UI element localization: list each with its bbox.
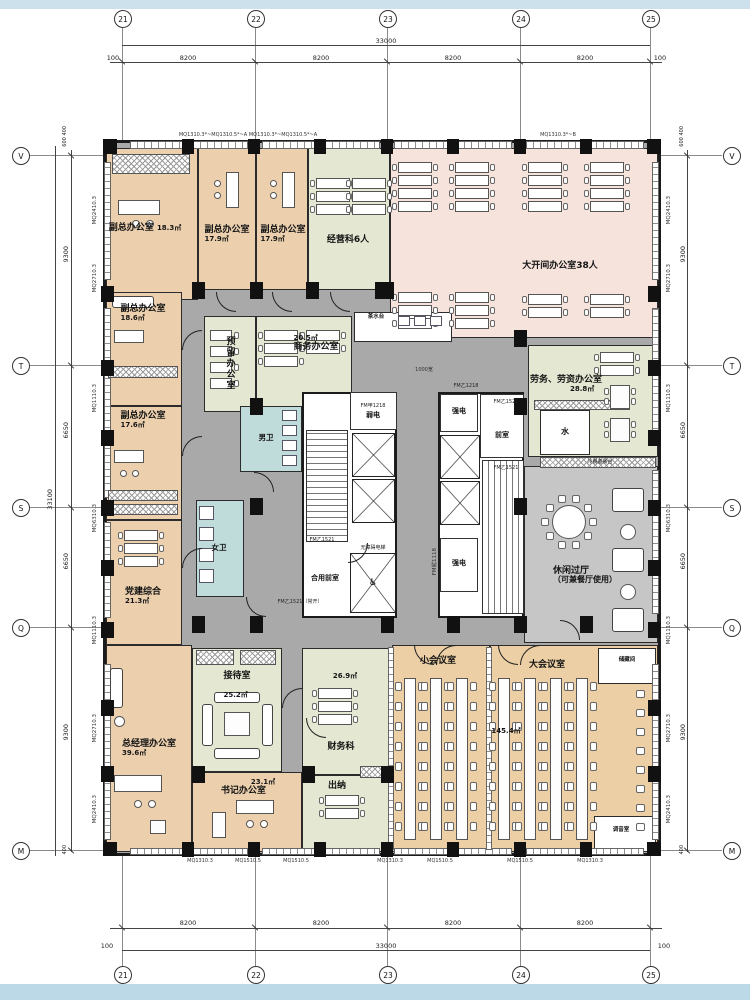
furniture-chair <box>449 164 454 171</box>
furniture-chair <box>490 307 495 314</box>
furniture-desk <box>455 305 489 316</box>
furniture-chair <box>353 716 358 723</box>
tag-fm-jia-1218: FM甲1218 <box>361 404 386 409</box>
wall-tag-bottom: MQ1310.3 <box>577 858 603 864</box>
tag-fm-bing-1118: FM丙1118 <box>431 548 439 575</box>
wall-tag-right: MQ2710.3 <box>666 714 672 742</box>
furniture-chair <box>159 558 164 565</box>
furniture-desk <box>318 688 352 699</box>
furniture-desk <box>528 294 562 305</box>
furniture-chair <box>625 190 630 197</box>
room-deputy-2 <box>198 148 256 290</box>
furniture-desk <box>282 172 295 208</box>
column <box>250 282 263 299</box>
furniture-chair <box>631 398 636 405</box>
wall-tag-bottom: MQ1510.5 <box>507 858 533 864</box>
dim-seg-right: 6650 <box>679 553 687 570</box>
furniture-chair <box>395 822 402 831</box>
grid-bubble-right-V: V <box>723 147 741 165</box>
furniture-chair <box>387 180 392 187</box>
furniture-desk <box>352 204 386 215</box>
furniture-desk <box>455 188 489 199</box>
furniture-chair <box>395 802 402 811</box>
furniture-circ <box>120 470 127 477</box>
furniture-desk <box>114 450 144 463</box>
furniture-desk <box>325 808 359 819</box>
wall-tag-right: MQ2410.3 <box>666 196 672 224</box>
column <box>101 766 114 782</box>
furniture-desk <box>455 201 489 212</box>
wall-tag-left: MQ1110.3 <box>92 616 98 644</box>
furniture-fix <box>199 506 214 520</box>
grid-bubble-top-21: 21 <box>114 10 132 28</box>
furniture-chair <box>584 177 589 184</box>
column <box>381 139 393 154</box>
label-mens-toilet: 男卫 <box>259 434 274 442</box>
furniture-chair <box>258 345 263 352</box>
furniture-circ <box>552 505 586 539</box>
tag-fm-1521-b: FM乙1521 <box>494 466 519 471</box>
furniture-tbl <box>610 418 630 442</box>
dim-edge: 100 <box>654 54 666 62</box>
furniture-chair <box>625 164 630 171</box>
furniture-chair <box>353 690 358 697</box>
furniture-sofa <box>612 608 644 632</box>
dim-line <box>71 150 72 852</box>
label-cashier: 出纳 <box>328 782 346 791</box>
furniture-chair <box>490 177 495 184</box>
furniture-chair <box>341 332 346 339</box>
column <box>648 286 661 302</box>
stair-right <box>482 460 524 614</box>
furniture-desk <box>590 201 624 212</box>
wall-tag-right: MQ2710.3 <box>666 264 672 292</box>
furniture-desk <box>316 178 350 189</box>
furniture-chair <box>546 504 554 512</box>
furniture-chair <box>234 364 239 371</box>
furniture-desk <box>124 543 158 554</box>
furniture-chair <box>567 682 574 691</box>
dim-seg-left: 6650 <box>62 422 70 439</box>
furniture-chair <box>563 164 568 171</box>
column <box>101 560 114 576</box>
furniture-desk <box>398 175 432 186</box>
furniture-chair <box>447 802 454 811</box>
dim-seg-bottom: 8200 <box>180 919 197 927</box>
grid-bubble-bottom-21: 21 <box>114 966 132 984</box>
label-accessible-elevator: 无障碍电梯 <box>360 546 385 551</box>
column <box>580 616 593 633</box>
grid-bubble-bottom-23: 23 <box>379 966 397 984</box>
furniture-chair <box>470 682 477 691</box>
furniture-chair <box>584 203 589 210</box>
furniture-chair <box>636 728 645 736</box>
column <box>314 842 326 857</box>
grid-line-col <box>650 28 651 140</box>
furniture-chair <box>541 782 548 791</box>
furniture-tbl <box>150 820 166 834</box>
furniture-chair <box>234 348 239 355</box>
furniture-chair <box>118 558 123 565</box>
furniture-chair <box>541 702 548 711</box>
furniture-chair <box>392 203 397 210</box>
column <box>375 282 388 299</box>
furniture-chair <box>567 762 574 771</box>
column <box>101 500 114 516</box>
furniture-circ <box>246 820 254 828</box>
dim-total-bottom: 33000 <box>376 942 397 950</box>
tag-fm-1521-a: FM乙1521 <box>494 400 519 405</box>
furniture-chair <box>490 164 495 171</box>
dim-total-top: 33000 <box>376 37 397 45</box>
column <box>192 282 205 299</box>
dim-seg-bottom: 8200 <box>313 919 330 927</box>
furniture-fix <box>430 316 442 326</box>
label-large-meeting-area: 145.4㎡ <box>491 728 520 735</box>
furniture-tbl <box>550 678 562 840</box>
furniture-chair <box>590 802 597 811</box>
furniture-chair <box>421 722 428 731</box>
column <box>182 139 194 154</box>
furniture-fix <box>199 569 214 583</box>
dim-seg-bottom: 8200 <box>445 919 462 927</box>
column <box>648 360 661 376</box>
label-deputy-2: 副总办公室17.9㎡ <box>204 226 249 245</box>
label-anteroom: 前室 <box>495 432 509 439</box>
furniture-chair <box>490 190 495 197</box>
furniture-chair <box>604 388 609 395</box>
wall-tag-bottom: MQ1510.5 <box>235 858 261 864</box>
furniture-desk <box>590 188 624 199</box>
furniture-chair <box>433 190 438 197</box>
furniture-chair <box>312 703 317 710</box>
furniture-chair <box>299 358 304 365</box>
column <box>648 700 661 716</box>
furniture-chair <box>563 309 568 316</box>
furniture-chair <box>594 367 599 374</box>
wall-tag-top: MQ1310.3*~MQ1310.5*~A <box>249 132 317 138</box>
furniture-circ <box>620 524 636 540</box>
label-strong-power-bottom: 强电 <box>452 560 466 567</box>
furniture-desk <box>455 175 489 186</box>
elevator-shaft-1 <box>352 433 395 477</box>
furniture-chair <box>447 722 454 731</box>
grid-line-col <box>387 856 388 968</box>
dim-edge: 100 <box>107 54 119 62</box>
label-finance-name: 财务科 <box>327 743 354 752</box>
furniture-chair <box>584 164 589 171</box>
label-gm-office: 总经理办公室39.6㎡ <box>122 740 176 759</box>
furniture-chair <box>604 398 609 405</box>
furniture-chair <box>541 822 548 831</box>
furniture-sofa <box>612 488 644 512</box>
furniture-chair <box>635 354 640 361</box>
wall-tag-bottom: MQ1510.5 <box>427 858 453 864</box>
column <box>648 560 661 576</box>
column <box>103 842 117 856</box>
furniture-chair <box>635 367 640 374</box>
elevator-shaft-2 <box>352 479 395 523</box>
furniture-chair <box>515 702 522 711</box>
furniture-circ <box>260 820 268 828</box>
label-storage: 储藏间 <box>619 658 636 664</box>
tag-fm-1521-c: FM乙1521 <box>310 538 335 543</box>
furniture-sofa <box>262 704 273 746</box>
furniture-tbl <box>576 678 588 840</box>
furniture-chair <box>541 722 548 731</box>
tag-fm-yi-1218: FM乙1218 <box>454 384 479 389</box>
furniture-desk <box>590 175 624 186</box>
furniture-desk <box>398 162 432 173</box>
furniture-chair <box>118 545 123 552</box>
wall-tag-right: MQ2410.3 <box>666 795 672 823</box>
furniture-chair <box>522 203 527 210</box>
wall-tag-right: MQ1110.3 <box>666 384 672 412</box>
furniture-chair <box>567 742 574 751</box>
label-shared-anteroom: 合用前室 <box>311 575 339 582</box>
furniture-chair <box>387 193 392 200</box>
furniture-chair <box>515 802 522 811</box>
column <box>103 139 117 154</box>
furniture-desk <box>590 162 624 173</box>
furniture-chair <box>567 722 574 731</box>
grid-bubble-top-24: 24 <box>512 10 530 28</box>
column <box>302 766 315 783</box>
furniture-chair <box>541 742 548 751</box>
furniture-chair <box>258 358 263 365</box>
furniture-chair <box>489 802 496 811</box>
wall-tag-left: MQ2410.3 <box>92 196 98 224</box>
grid-bubble-left-T: T <box>12 357 30 375</box>
top-blue-band <box>0 0 750 9</box>
furniture-chair <box>584 309 589 316</box>
dim-edge-left-bottom: 400 <box>62 845 68 855</box>
furniture-desk <box>455 292 489 303</box>
furniture-chair <box>449 190 454 197</box>
furniture-chair <box>392 320 397 327</box>
label-deputy-1: 副总办公室 18.3㎡ <box>109 224 181 233</box>
furniture-desk <box>590 307 624 318</box>
grid-bubble-left-V: V <box>12 147 30 165</box>
furniture-chair <box>515 742 522 751</box>
furniture-chair <box>558 541 566 549</box>
dim-edge: 100 <box>101 942 113 950</box>
room-deputy-3 <box>256 148 308 290</box>
elevator-shaft-3 <box>440 435 480 479</box>
furniture-chair <box>449 320 454 327</box>
furniture-fix <box>282 425 297 436</box>
note-corridor-width: 1000宽 <box>415 368 433 373</box>
elevator-shaft-4 <box>440 481 480 525</box>
furniture-chair <box>395 682 402 691</box>
furniture-chair <box>541 762 548 771</box>
column <box>647 842 661 856</box>
column <box>314 139 326 154</box>
label-buffet-counter: 冷餐备餐台 <box>587 460 612 465</box>
column <box>648 766 661 782</box>
furniture-chair <box>360 797 365 804</box>
furniture-chair <box>631 421 636 428</box>
furniture-desk <box>316 204 350 215</box>
dim-seg-left: 9300 <box>62 246 70 263</box>
furniture-chair <box>584 504 592 512</box>
furniture-chair <box>594 354 599 361</box>
furniture-sofa <box>214 748 260 759</box>
grid-line-row <box>661 850 722 851</box>
furniture-chair <box>589 518 597 526</box>
column <box>447 616 460 633</box>
furniture-chair <box>590 782 597 791</box>
furniture-circ <box>620 584 636 600</box>
furniture-chair <box>341 345 346 352</box>
dim-edge: 100 <box>658 942 670 950</box>
dim-seg-left: 9300 <box>62 724 70 741</box>
cabinet-strip <box>240 650 276 665</box>
furniture-chair <box>447 782 454 791</box>
furniture-chair <box>636 709 645 717</box>
furniture-chair <box>447 702 454 711</box>
furniture-desk <box>264 356 298 367</box>
column <box>101 430 114 446</box>
stair-left <box>306 430 348 542</box>
column <box>192 616 205 633</box>
furniture-chair <box>546 532 554 540</box>
column <box>381 842 393 857</box>
column <box>447 139 459 154</box>
label-strong-power-top: 强电 <box>452 408 466 415</box>
column <box>381 766 394 783</box>
label-deputy-5: 副总办公室17.6㎡ <box>120 412 165 431</box>
dim-seg-right: 6650 <box>679 422 687 439</box>
furniture-fix <box>398 316 410 326</box>
furniture-desk <box>325 795 359 806</box>
furniture-fix <box>414 316 426 326</box>
furniture-desk <box>528 175 562 186</box>
label-weak-power: 弱电 <box>366 412 380 419</box>
furniture-tbl <box>524 678 536 840</box>
column <box>250 398 263 415</box>
furniture-chair <box>346 206 351 213</box>
furniture-chair <box>470 702 477 711</box>
furniture-chair <box>312 690 317 697</box>
label-tea-station: 茶水台 <box>368 315 385 321</box>
furniture-chair <box>541 518 549 526</box>
furniture-desk <box>124 530 158 541</box>
dim-seg-left: 6650 <box>62 553 70 570</box>
grid-bubble-top-23: 23 <box>379 10 397 28</box>
label-secretary-office: 23.1㎡书记办公室 <box>221 778 275 797</box>
furniture-chair <box>319 797 324 804</box>
column <box>101 360 114 376</box>
label-leisure-hall: 休闲过厅（可兼餐厅使用） <box>553 567 617 586</box>
furniture-chair <box>310 206 315 213</box>
furniture-desk <box>528 307 562 318</box>
window-strip <box>652 162 659 280</box>
room-operations <box>308 148 390 290</box>
label-reception: 接待室25.2㎡ <box>223 672 250 700</box>
floor-plan-canvas: ♿ 副总办公室 18.3㎡ 副总办公室17.9㎡ 副总办公室17.9㎡ 经营科6… <box>0 0 750 1000</box>
furniture-chair <box>631 431 636 438</box>
furniture-chair <box>567 822 574 831</box>
furniture-chair <box>625 309 630 316</box>
furniture-tbl <box>430 678 442 840</box>
label-sound-room: 调音室 <box>613 828 630 834</box>
furniture-tbl <box>610 385 630 409</box>
furniture-chair <box>567 782 574 791</box>
accessible-elevator-shaft: ♿ <box>350 553 396 613</box>
wall-tag-bottom: MQ1310.3 <box>187 858 213 864</box>
dim-seg-top: 8200 <box>577 54 594 62</box>
furniture-chair <box>636 766 645 774</box>
furniture-circ <box>214 192 221 199</box>
dim-edge-right-bottom: 400 <box>679 845 685 855</box>
furniture-chair <box>590 742 597 751</box>
furniture-chair <box>360 810 365 817</box>
furniture-chair <box>563 177 568 184</box>
glass-partition <box>388 647 394 850</box>
furniture-circ <box>134 800 142 808</box>
furniture-desk <box>236 800 274 814</box>
furniture-desk <box>114 775 162 792</box>
furniture-fix <box>282 440 297 451</box>
furniture-chair <box>625 177 630 184</box>
furniture-desk <box>124 556 158 567</box>
furniture-chair <box>584 190 589 197</box>
dim-seg-top: 8200 <box>180 54 197 62</box>
furniture-chair <box>489 762 496 771</box>
furniture-chair <box>563 296 568 303</box>
column <box>250 498 263 515</box>
furniture-chair <box>421 782 428 791</box>
grid-bubble-right-Q: Q <box>723 619 741 637</box>
furniture-chair <box>392 307 397 314</box>
wall-tag-right: MQ6310.3 <box>666 504 672 532</box>
furniture-chair <box>470 822 477 831</box>
furniture-chair <box>387 206 392 213</box>
furniture-chair <box>447 682 454 691</box>
furniture-desk <box>316 191 350 202</box>
furniture-chair <box>449 307 454 314</box>
window-strip <box>652 470 659 614</box>
furniture-circ <box>270 192 277 199</box>
furniture-chair <box>584 532 592 540</box>
furniture-desk <box>590 294 624 305</box>
furniture-circ <box>214 180 221 187</box>
label-operations: 经营科6人 <box>327 236 369 245</box>
cabinet-strip <box>112 154 190 174</box>
furniture-chair <box>515 682 522 691</box>
furniture-chair <box>346 193 351 200</box>
label-small-meeting: 小会议室 <box>420 657 456 666</box>
room-storage <box>598 648 656 684</box>
grid-bubble-bottom-25: 25 <box>642 966 660 984</box>
dim-line <box>122 45 650 46</box>
furniture-chair <box>395 782 402 791</box>
furniture-chair <box>590 702 597 711</box>
label-business-office: 20.5㎡商务办公室 <box>293 334 338 353</box>
furniture-desk <box>352 191 386 202</box>
furniture-chair <box>636 823 645 831</box>
furniture-circ <box>132 470 139 477</box>
furniture-fix <box>282 455 297 466</box>
furniture-chair <box>421 762 428 771</box>
grid-line-row <box>29 365 103 366</box>
furniture-chair <box>433 294 438 301</box>
furniture-chair <box>563 203 568 210</box>
furniture-fix <box>199 527 214 541</box>
label-womens-toilet: 女卫 <box>212 544 227 552</box>
column <box>192 766 205 783</box>
